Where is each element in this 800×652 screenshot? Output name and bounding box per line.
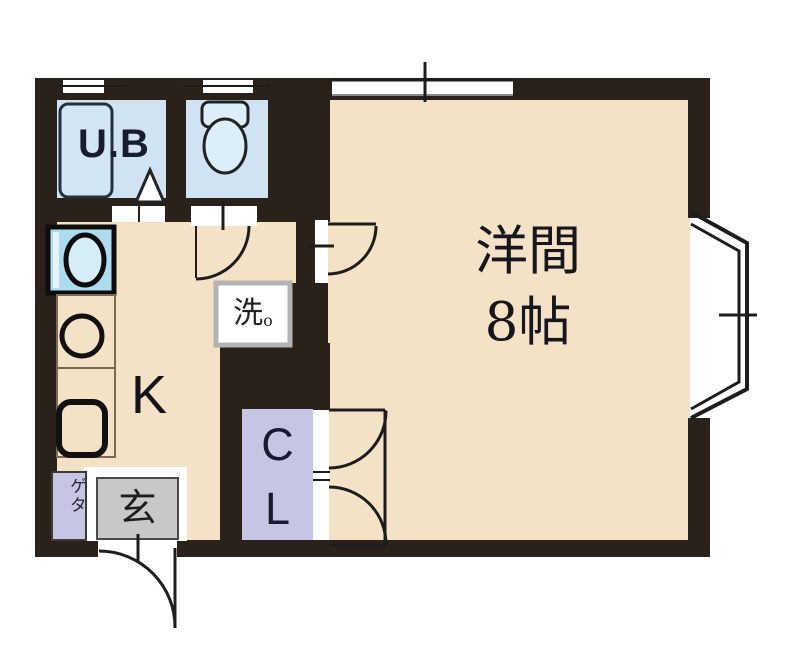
toilet-bowl-icon	[204, 119, 246, 173]
floor-plan-drawing	[0, 0, 800, 652]
closet-box	[242, 409, 313, 540]
bay-window	[691, 212, 757, 418]
wall-right-lower	[688, 418, 710, 540]
wall-right-upper	[688, 78, 710, 218]
washbasin-bowl-icon	[66, 235, 104, 285]
sink-icon	[62, 316, 102, 356]
shoe-cabinet-box	[52, 472, 86, 540]
closet-door-slot	[313, 410, 329, 540]
kitchen-room-door-panel	[315, 220, 328, 283]
entrance-floor	[97, 478, 178, 539]
window-room	[332, 80, 513, 95]
wall-left-of-closet	[220, 360, 242, 540]
bathtub-icon	[60, 104, 112, 197]
wall-bath-toilet-divider	[166, 78, 186, 222]
washer-box	[216, 283, 290, 345]
stove-icon	[59, 402, 105, 455]
floor-plan: U.B K 洋間 8帖 C L 玄 ゲタ 洗 o	[0, 0, 800, 652]
washbasin-ledge	[53, 232, 59, 288]
